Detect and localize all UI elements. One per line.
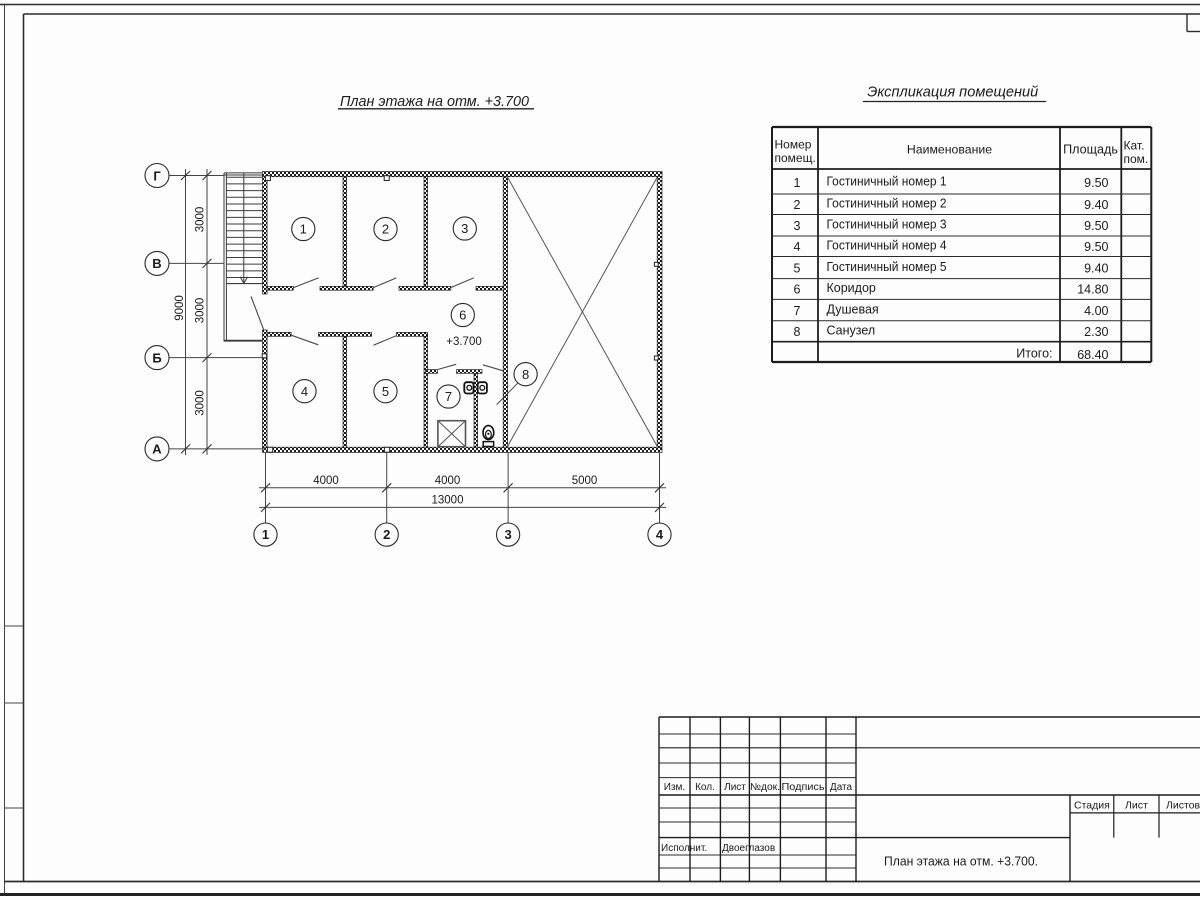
svg-text:68.40: 68.40 [1077,348,1108,362]
svg-text:3: 3 [504,527,511,542]
svg-text:9.50: 9.50 [1084,219,1108,233]
svg-text:Лист: Лист [724,782,746,793]
svg-text:План этажа на отм. +3.700.: План этажа на отм. +3.700. [884,854,1038,869]
svg-text:Гостиничный номер 4: Гостиничный номер 4 [827,238,947,252]
svg-text:План этажа на отм. +3.700: План этажа на отм. +3.700 [340,94,529,110]
svg-text:Гостиничный номер 3: Гостиничный номер 3 [827,217,947,231]
svg-text:1: 1 [794,176,801,190]
svg-text:3: 3 [794,219,801,233]
svg-text:9.40: 9.40 [1084,261,1108,275]
svg-text:Б: Б [152,350,161,365]
svg-text:Душевая: Душевая [827,302,879,316]
svg-text:помещ.: помещ. [775,151,816,165]
svg-text:А: А [152,442,162,457]
svg-text:14.80: 14.80 [1077,283,1108,297]
svg-text:5: 5 [382,384,389,399]
svg-text:Листов: Листов [1166,800,1200,812]
svg-text:1: 1 [300,222,307,237]
svg-text:Наименование: Наименование [907,143,992,157]
svg-text:13000: 13000 [432,495,464,507]
svg-text:5: 5 [794,261,801,275]
svg-text:2: 2 [794,198,801,212]
svg-text:Номер: Номер [775,138,812,152]
svg-text:В: В [152,256,161,271]
svg-text:Двоеглазов: Двоеглазов [722,843,775,854]
svg-text:Кат.: Кат. [1124,139,1145,153]
svg-text:3000: 3000 [195,390,207,416]
svg-text:9000: 9000 [174,295,186,321]
svg-text:Дата: Дата [830,782,853,793]
svg-text:5000: 5000 [572,475,598,487]
svg-text:Подпись: Подпись [782,782,825,793]
svg-text:4000: 4000 [435,475,461,487]
svg-text:8: 8 [522,367,529,382]
svg-text:Площадь: Площадь [1063,143,1118,157]
svg-text:Коридор: Коридор [827,281,876,295]
svg-text:Исполнит.: Исполнит. [661,843,707,854]
svg-text:7: 7 [445,389,452,404]
svg-text:Итого:: Итого: [1016,346,1052,360]
svg-text:Гостиничный номер 1: Гостиничный номер 1 [827,175,947,189]
svg-text:6: 6 [459,308,466,323]
svg-text:Кол.: Кол. [695,782,715,793]
svg-text:2.30: 2.30 [1084,325,1108,339]
svg-text:2: 2 [382,222,389,237]
svg-text:9.50: 9.50 [1084,176,1108,190]
svg-text:9.50: 9.50 [1084,240,1108,254]
svg-text:8: 8 [794,325,801,339]
svg-text:4: 4 [794,240,801,254]
svg-text:Изм.: Изм. [664,782,685,793]
svg-text:4: 4 [301,384,308,399]
svg-text:1: 1 [262,527,269,542]
svg-text:пом.: пом. [1124,152,1149,166]
svg-text:Г: Г [153,168,161,183]
svg-text:Гостиничный номер 5: Гостиничный номер 5 [827,260,947,274]
svg-text:3000: 3000 [195,207,207,233]
svg-text:Экспликация помещений: Экспликация помещений [867,85,1038,101]
svg-text:7: 7 [794,304,801,318]
svg-text:6: 6 [794,283,801,297]
svg-text:9.40: 9.40 [1084,198,1108,212]
svg-text:4: 4 [656,527,664,542]
svg-text:+3.700: +3.700 [446,336,482,348]
svg-text:4.00: 4.00 [1084,304,1108,318]
svg-text:3000: 3000 [195,298,207,324]
svg-text:3: 3 [461,221,468,236]
svg-text:Гостиничный номер 2: Гостиничный номер 2 [827,196,947,210]
svg-text:4000: 4000 [313,475,339,487]
svg-text:Стадия: Стадия [1074,800,1110,812]
svg-text:2: 2 [383,527,390,542]
svg-text:№док.: №док. [750,782,780,793]
svg-text:Лист: Лист [1125,800,1148,812]
svg-text:Санузел: Санузел [827,323,876,337]
